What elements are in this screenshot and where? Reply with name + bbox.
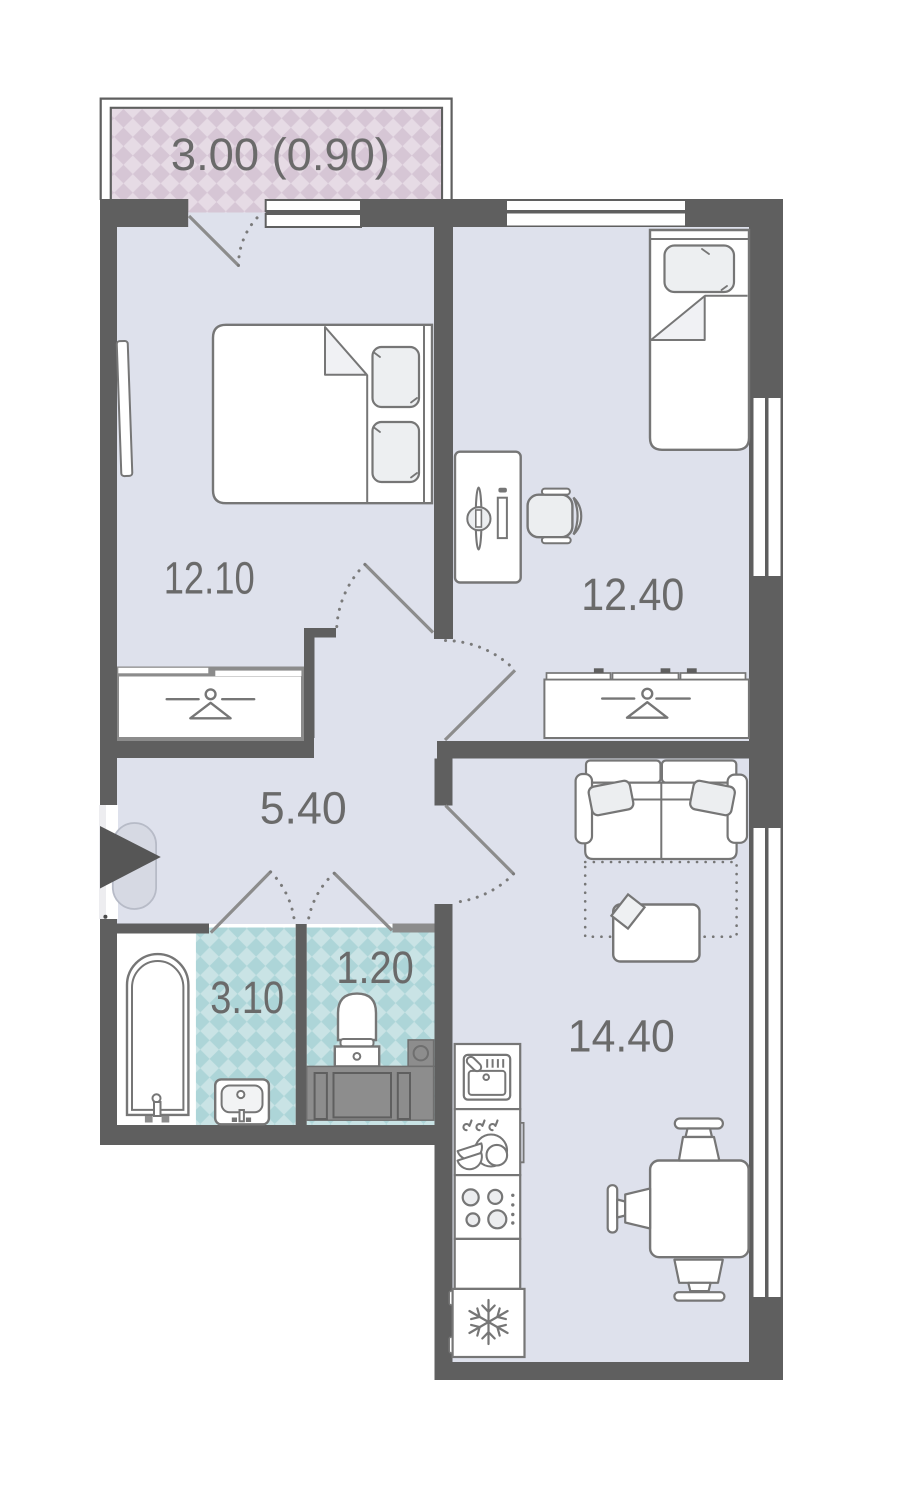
svg-text:14.40: 14.40 <box>568 1010 675 1061</box>
svg-text:12.10: 12.10 <box>164 552 255 603</box>
svg-text:5.40: 5.40 <box>260 782 347 833</box>
svg-text:3.00 (0.90): 3.00 (0.90) <box>171 129 390 180</box>
svg-text:1.20: 1.20 <box>336 942 414 993</box>
svg-text:12.40: 12.40 <box>581 569 684 620</box>
svg-text:3.10: 3.10 <box>210 972 284 1023</box>
